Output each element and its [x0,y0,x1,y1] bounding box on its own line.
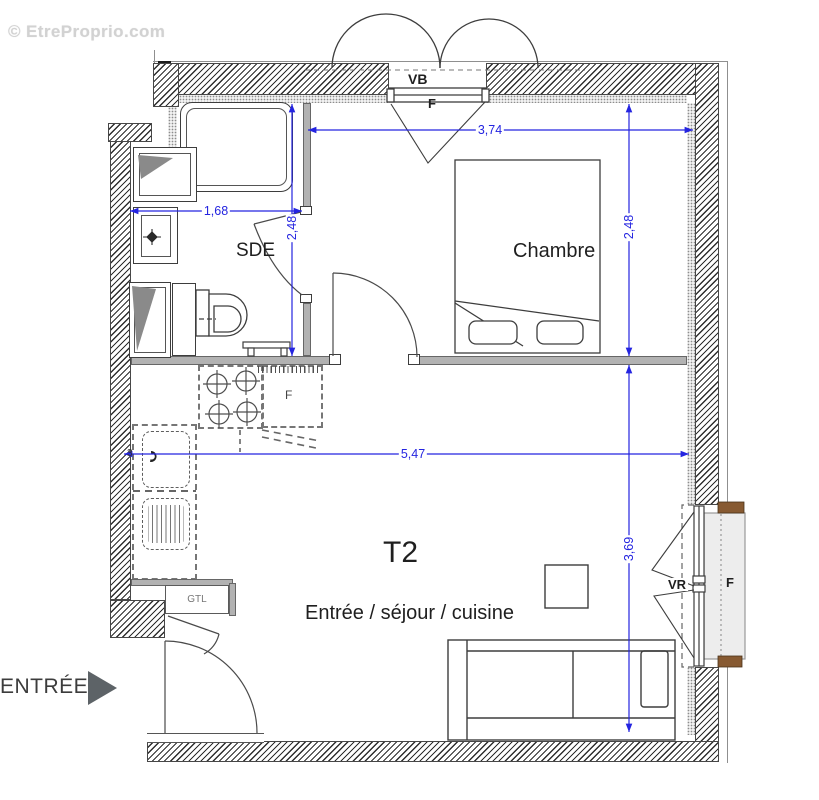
entrance-arrow-icon [88,671,117,705]
toilet [196,290,247,336]
pillow [469,321,517,344]
apartment-type-label: T2 [383,538,418,568]
side-table [545,565,588,608]
window-sill-wood [718,502,744,513]
shaft-pennants [132,155,173,351]
dim-label-bathroom-depth: 2,48 [286,214,299,242]
dim-label-bedroom-width: 3,74 [476,124,504,137]
linework-layer [0,0,819,800]
room-label-living: Entrée / séjour / cuisine [305,603,514,623]
sofa [448,640,675,740]
note-label: 3 [127,449,133,459]
sink-faucet-icon [150,451,157,462]
window-sill-wood [718,656,742,667]
gtl-door-leaf [168,616,219,634]
bedroom-door-arc [333,273,417,357]
cooktop-burners [203,367,261,428]
window-top-f-label: F [428,97,436,110]
faucet-icon [143,229,161,245]
floorplan-canvas: © EtreProprio.com GTL [0,0,819,800]
entry-door-arc [165,641,257,733]
room-label-bathroom: SDE [236,241,275,260]
dim-label-living-depth: 3,69 [623,535,636,563]
dim-label-living-width: 5,47 [399,448,427,461]
bench [243,342,290,356]
fridge-door-dashes [133,430,320,491]
entrance-label: ENTRÉE [0,676,88,697]
window-right-vr-label: VR [666,578,688,591]
room-label-bedroom: Chambre [513,241,595,261]
window-top [305,14,585,163]
window-right-f-label: F [726,576,734,589]
dim-label-bedroom-depth: 2,48 [623,213,636,241]
window-top-vb-label: VB [406,72,429,86]
pillow [537,321,583,344]
dim-label-bathroom-width: 1,68 [202,205,230,218]
fridge-label: F [285,389,292,401]
